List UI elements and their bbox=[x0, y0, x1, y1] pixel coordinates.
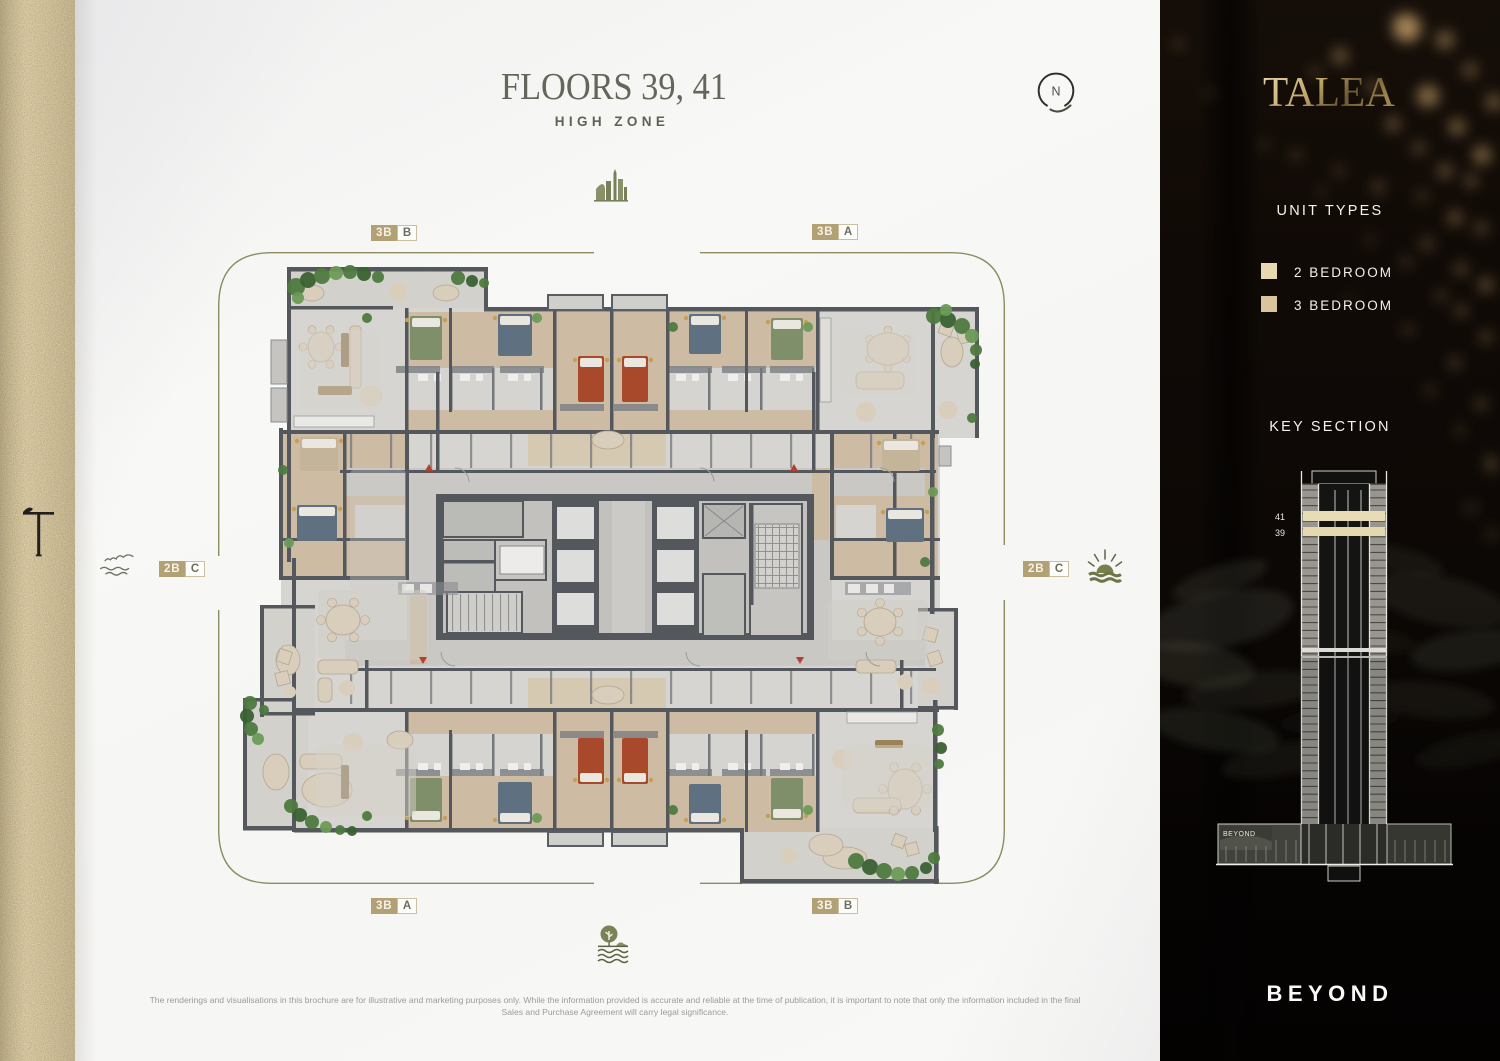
svg-text:N: N bbox=[1051, 85, 1060, 99]
svg-text:TALEA: TALEA bbox=[1263, 70, 1396, 116]
svg-text:BEYOND: BEYOND bbox=[1223, 831, 1256, 838]
svg-text:39: 39 bbox=[1275, 528, 1285, 538]
svg-text:41: 41 bbox=[1275, 512, 1285, 522]
svg-text:HIGH ZONE: HIGH ZONE bbox=[555, 114, 670, 129]
svg-text:FLOORS 39, 41: FLOORS 39, 41 bbox=[501, 66, 727, 108]
